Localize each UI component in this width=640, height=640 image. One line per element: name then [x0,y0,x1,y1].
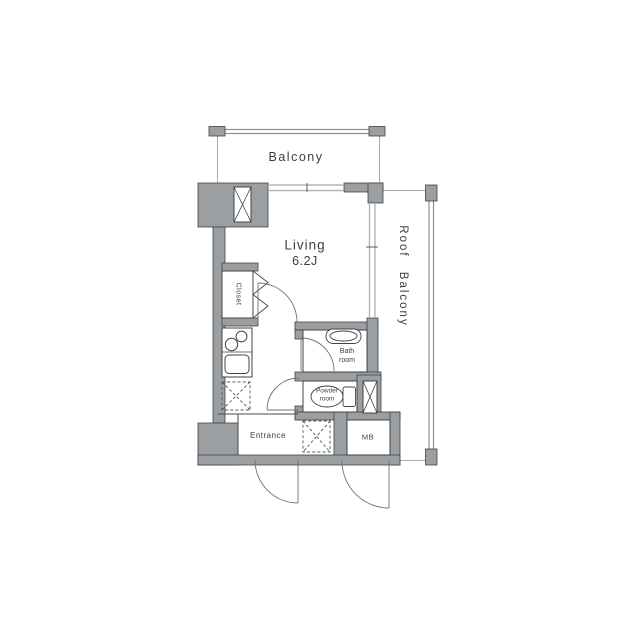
wall-closet-bottom [222,318,258,326]
window-roof-balcony-side [366,203,378,318]
bathroom-label: Bath room [339,347,355,365]
wall-mb-left [334,412,347,457]
roof-balcony-label: Roof Balcony [396,225,410,326]
meter-box-door-arc [342,461,389,508]
wall-bottom [198,455,400,465]
kitchen-sink-icon [225,355,249,374]
powder-room-label: Powder room [316,388,338,405]
wall-bath-right [367,318,378,378]
wall-closet-top [222,263,258,271]
bathroom-label-line2: room [339,356,355,365]
bathtub-icon [326,329,361,344]
wall-top-left-block [198,183,268,227]
shoe-storage-space-icon [303,421,330,452]
powder-room-door-arc [267,378,299,410]
closet-folding-door-icon [253,271,268,318]
floor-plan-drawing [0,0,640,640]
entrance-label: Entrance [250,431,286,441]
entrance-door-arc [255,460,298,503]
floor-plan: Balcony Living 6.2J Roof Balcony Closet … [0,0,640,640]
wall-corner-right [368,183,383,203]
bathroom-label-line1: Bath [339,347,355,356]
pipe-shaft-icon [363,381,377,413]
wall-powder-bottom [295,412,400,420]
balcony-rail-caps [209,127,385,137]
balcony-label: Balcony [269,150,324,166]
powder-room-label-line2: room [316,396,338,404]
roof-balcony-rail-caps [426,185,438,465]
living-size-label: 6.2J [292,254,318,270]
pipe-shaft-icon [234,187,251,222]
refrigerator-space-icon [222,382,250,410]
window-balcony-side [268,183,344,192]
powder-room-label-line1: Powder [316,388,338,396]
meter-box-label: MB [362,432,374,441]
closet-label: Closet [233,283,242,306]
living-label: Living [284,238,325,255]
